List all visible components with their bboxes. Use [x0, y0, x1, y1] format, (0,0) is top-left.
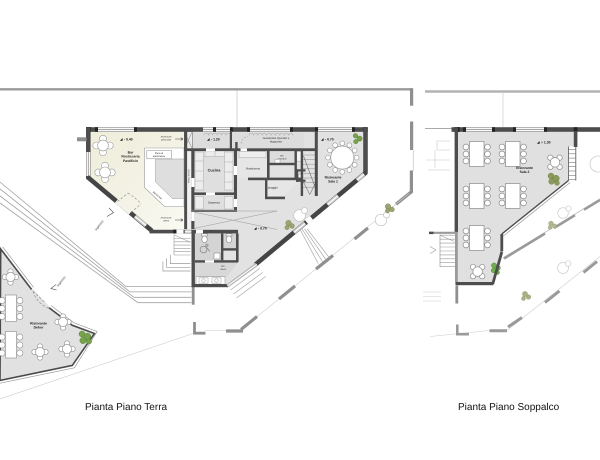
svg-text:Pianta Piano Terra: Pianta Piano Terra: [85, 402, 168, 413]
svg-text:Ascensore: Ascensore: [161, 217, 173, 220]
svg-text:WC: WC: [221, 265, 225, 268]
svg-text:+ 1.30: + 1.30: [541, 141, 551, 145]
svg-text:- 0.70: - 0.70: [258, 227, 267, 231]
svg-text:Cucina: Cucina: [208, 169, 222, 173]
svg-text:Sala 1: Sala 1: [328, 180, 338, 184]
svg-text:Ascensore: Ascensore: [161, 136, 173, 139]
svg-text:personale: personale: [161, 139, 172, 142]
svg-text:- 0.70: - 0.70: [325, 138, 334, 142]
svg-text:Piani ed: Piani ed: [155, 152, 164, 155]
svg-text:- 0.40: - 0.40: [124, 138, 133, 142]
svg-text:Sala 2: Sala 2: [520, 170, 530, 174]
svg-text:clienti: clienti: [163, 220, 169, 223]
svg-text:Retro Servizi: Retro Servizi: [188, 169, 191, 183]
svg-text:Pastificio: Pastificio: [123, 159, 138, 163]
svg-text:- 1.20: - 1.20: [211, 138, 220, 142]
svg-text:Pianta Piano Soppalco: Pianta Piano Soppalco: [458, 402, 560, 413]
svg-text:WC: WC: [280, 155, 284, 158]
svg-text:Dispensa: Dispensa: [208, 201, 220, 205]
svg-text:attrezzature: attrezzature: [153, 155, 166, 158]
svg-text:Rosticceria: Rosticceria: [246, 167, 260, 171]
svg-text:Magazzino: Magazzino: [270, 141, 283, 144]
svg-text:Dehor: Dehor: [34, 326, 44, 330]
svg-text:Lavaggio: Lavaggio: [266, 186, 278, 190]
svg-text:clienti: clienti: [220, 268, 226, 271]
